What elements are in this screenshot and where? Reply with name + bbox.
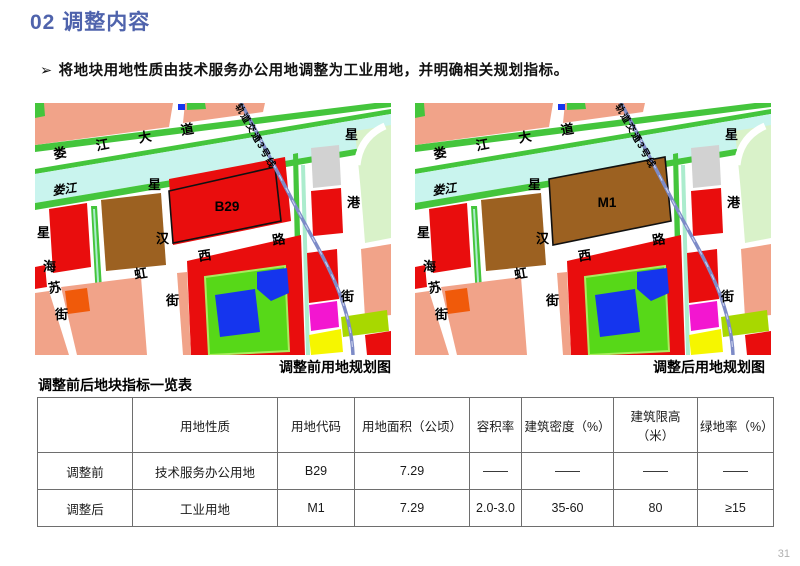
street-label: 虹 — [513, 265, 528, 282]
table-cell: 80 — [614, 490, 698, 527]
parcel-green — [415, 103, 425, 118]
map-svg-left: 娄江大道轨道交通3号线娄江苏虹西路星海街星汉街星港街B29 — [35, 103, 391, 355]
table-title: 调整前后地块指标一览表 — [38, 375, 192, 395]
street-label: 街 — [340, 289, 354, 304]
table-row: 调整前技术服务办公用地B297.29———————— — [38, 453, 774, 490]
bullet-line: ➢将地块用地性质由技术服务办公用地调整为工业用地，并明确相关规划指标。 — [40, 59, 569, 80]
table-cell: —— — [470, 453, 522, 490]
table-cell: —— — [522, 453, 614, 490]
street-label: 苏 — [427, 279, 442, 296]
table-header-cell — [38, 398, 133, 453]
parcel-salmon — [741, 244, 771, 318]
table-cell: 7.29 — [355, 490, 470, 527]
street-label: 西 — [577, 247, 592, 264]
table-cell: 调整后 — [38, 490, 133, 527]
table-cell: —— — [698, 453, 774, 490]
street-label: 港 — [727, 195, 741, 210]
street-label: 星 — [725, 127, 738, 142]
table-cell: ≥15 — [698, 490, 774, 527]
street-label: 街 — [54, 307, 68, 322]
street-label: 西 — [197, 247, 212, 264]
table-header-cell: 用地性质 — [133, 398, 278, 453]
table-header-cell: 容积率 — [470, 398, 522, 453]
street-label: 海 — [43, 259, 56, 274]
parcel-blue — [215, 289, 260, 337]
street-label: 苏 — [47, 279, 62, 296]
parcel-blue — [558, 104, 565, 110]
street-label: 星 — [528, 177, 541, 192]
planning-map-before: 娄江大道轨道交通3号线娄江苏虹西路星海街星汉街星港街B29 — [35, 103, 391, 355]
table-header-cell: 用地代码 — [278, 398, 355, 453]
table-cell: 7.29 — [355, 453, 470, 490]
planning-map-after: 娄江大道轨道交通3号线娄江苏虹西路星海街星汉街星港街M1 — [415, 103, 771, 355]
parcel-green — [35, 103, 45, 118]
street-label: 星 — [37, 225, 50, 240]
parcel-grey — [691, 145, 721, 188]
parcel-code-label: M1 — [598, 195, 617, 210]
table-cell: 35-60 — [522, 490, 614, 527]
street-label: 汉 — [156, 231, 170, 246]
table-cell: 2.0-3.0 — [470, 490, 522, 527]
indicator-table: 用地性质用地代码用地面积（公顷）容积率建筑密度（%）建筑限高（米）绿地率（%）调… — [37, 397, 774, 527]
table-header-cell: 绿地率（%） — [698, 398, 774, 453]
table-cell: M1 — [278, 490, 355, 527]
parcel-code-label: B29 — [215, 199, 240, 214]
map-svg-right: 娄江大道轨道交通3号线娄江苏虹西路星海街星汉街星港街M1 — [415, 103, 771, 355]
street-label: 星 — [417, 225, 430, 240]
parcel-green — [567, 103, 586, 110]
table-row: 调整后工业用地M17.292.0-3.035-6080≥15 — [38, 490, 774, 527]
caption-map-after: 调整后用地规划图 — [409, 357, 765, 377]
table-header-cell: 建筑密度（%） — [522, 398, 614, 453]
parcel-salmon — [361, 244, 391, 318]
parcel-blue — [178, 104, 185, 110]
street-label: 星 — [148, 177, 161, 192]
street-label: 汉 — [536, 231, 550, 246]
slide: 02 调整内容 ➢将地块用地性质由技术服务办公用地调整为工业用地，并明确相关规划… — [0, 0, 800, 566]
page-number: 31 — [778, 548, 790, 560]
page-title: 02 调整内容 — [30, 6, 150, 36]
street-label: 街 — [165, 293, 179, 308]
street-label: 街 — [545, 293, 559, 308]
table-cell: 调整前 — [38, 453, 133, 490]
street-label: 海 — [423, 259, 436, 274]
parcel-red — [365, 331, 391, 355]
parcel-red — [745, 331, 771, 355]
parcel-orange — [445, 288, 470, 314]
street-label: 星 — [345, 127, 358, 142]
caption-map-before: 调整前用地规划图 — [35, 357, 391, 377]
parcel-blue — [595, 289, 640, 337]
parcel-grey — [311, 145, 341, 188]
table-header-row: 用地性质用地代码用地面积（公顷）容积率建筑密度（%）建筑限高（米）绿地率（%） — [38, 398, 774, 453]
parcel-orange — [65, 288, 90, 314]
table-header-cell: 用地面积（公顷） — [355, 398, 470, 453]
street-label: 街 — [720, 289, 734, 304]
parcel-red — [311, 188, 343, 236]
table-cell: 工业用地 — [133, 490, 278, 527]
parcel-magenta — [689, 301, 719, 331]
parcel-red — [691, 188, 723, 236]
table-cell: —— — [614, 453, 698, 490]
table-header-cell: 建筑限高（米） — [614, 398, 698, 453]
street-label: 虹 — [133, 265, 148, 282]
bullet-text: 将地块用地性质由技术服务办公用地调整为工业用地，并明确相关规划指标。 — [59, 63, 569, 79]
table-cell: B29 — [278, 453, 355, 490]
table-cell: 技术服务办公用地 — [133, 453, 278, 490]
bullet-arrow-icon: ➢ — [40, 63, 53, 79]
parcel-green — [187, 103, 206, 110]
street-label: 街 — [434, 307, 448, 322]
parcel-magenta — [309, 301, 339, 331]
street-label: 港 — [347, 195, 361, 210]
